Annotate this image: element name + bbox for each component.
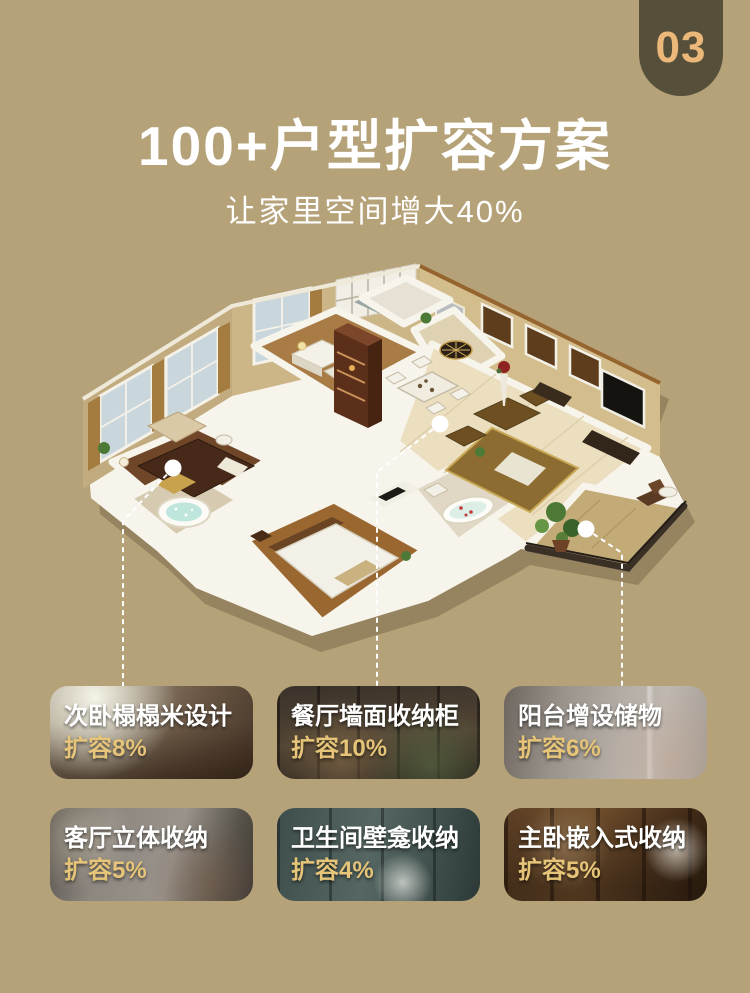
feature-card-living-room: 客厅立体收纳 扩容5% [50, 808, 253, 901]
callout-dot-2 [432, 416, 449, 433]
promo-page: 03 100+户型扩容方案 让家里空间增大40% 次卧榻榻米设计 扩容8% 餐厅… [0, 0, 750, 993]
card-title: 客厅立体收纳 [64, 823, 245, 855]
card-title: 阳台增设储物 [518, 701, 699, 733]
feature-card-balcony: 阳台增设储物 扩容6% [504, 686, 707, 779]
card-value: 扩容5% [518, 855, 699, 887]
card-value: 扩容10% [291, 733, 472, 765]
card-title: 餐厅墙面收纳柜 [291, 701, 472, 733]
page-subtitle: 让家里空间增大40% [0, 186, 750, 231]
card-value: 扩容8% [64, 733, 245, 765]
card-value: 扩容5% [64, 855, 245, 887]
card-title: 次卧榻榻米设计 [64, 701, 245, 733]
feature-card-secondary-bedroom: 次卧榻榻米设计 扩容8% [50, 686, 253, 779]
card-value: 扩容4% [291, 855, 472, 887]
callout-dot-1 [165, 460, 182, 477]
feature-card-master-bedroom: 主卧嵌入式收纳 扩容5% [504, 808, 707, 901]
card-title: 卫生间壁龛收纳 [291, 823, 472, 855]
section-number: 03 [656, 23, 707, 73]
callout-dot-3 [578, 521, 595, 538]
bookshelf [334, 330, 368, 428]
card-value: 扩容6% [518, 733, 699, 765]
page-title: 100+户型扩容方案 [0, 101, 750, 181]
section-number-badge: 03 [639, 0, 723, 96]
card-title: 主卧嵌入式收纳 [518, 823, 699, 855]
feature-card-dining-room: 餐厅墙面收纳柜 扩容10% [277, 686, 480, 779]
feature-card-bathroom: 卫生间壁龛收纳 扩容4% [277, 808, 480, 901]
floorplan-building [83, 264, 695, 652]
